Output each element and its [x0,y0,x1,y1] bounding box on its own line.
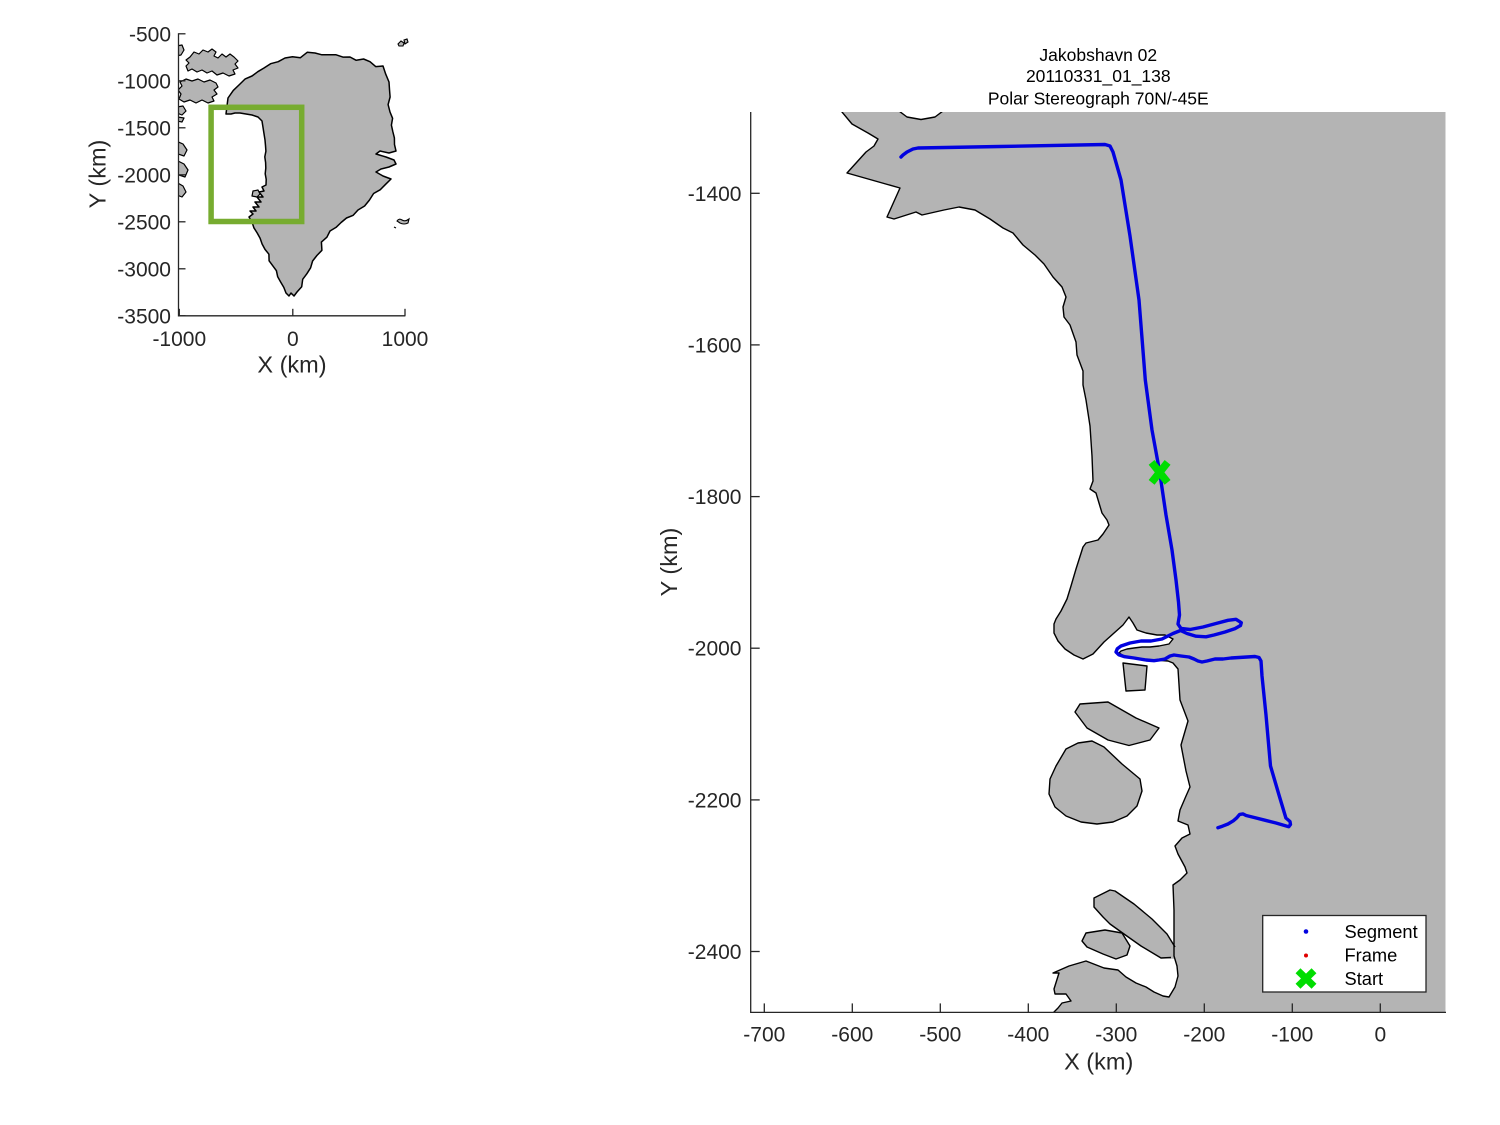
svg-text:-1600: -1600 [688,334,742,357]
svg-text:-2200: -2200 [688,789,742,812]
svg-text:X (km): X (km) [1064,1049,1133,1075]
svg-text:Segment: Segment [1345,921,1418,942]
svg-text:-2000: -2000 [688,638,742,661]
svg-text:-2400: -2400 [688,941,742,964]
svg-text:-300: -300 [1095,1023,1137,1046]
svg-text:X (km): X (km) [257,351,326,377]
svg-text:-2500: -2500 [117,211,171,234]
svg-text:-100: -100 [1271,1023,1313,1046]
svg-text:-200: -200 [1183,1023,1225,1046]
svg-text:0: 0 [1374,1023,1386,1046]
svg-text:-2000: -2000 [117,164,171,187]
svg-text:Polar Stereograph 70N/-45E: Polar Stereograph 70N/-45E [988,89,1209,109]
svg-text:Frame: Frame [1345,945,1398,966]
svg-text:-700: -700 [743,1023,785,1046]
svg-text:-400: -400 [1007,1023,1049,1046]
svg-text:-3000: -3000 [117,258,171,281]
svg-text:-1000: -1000 [117,70,171,93]
svg-text:Y (km): Y (km) [656,528,682,597]
svg-text:0: 0 [287,328,299,351]
svg-text:-3500: -3500 [117,305,171,328]
svg-text:-1500: -1500 [117,117,171,140]
svg-text:Jakobshavn 02: Jakobshavn 02 [1039,45,1157,65]
svg-text:-600: -600 [831,1023,873,1046]
svg-text:1000: 1000 [382,328,429,351]
svg-text:-500: -500 [919,1023,961,1046]
svg-text:-1000: -1000 [152,328,206,351]
svg-text:Start: Start [1345,968,1384,989]
svg-text:-1800: -1800 [688,486,742,509]
svg-text:-500: -500 [129,23,171,46]
svg-text:Y (km): Y (km) [85,140,111,209]
svg-text:20110331_01_138: 20110331_01_138 [1026,66,1171,87]
svg-text:-1400: -1400 [688,183,742,206]
